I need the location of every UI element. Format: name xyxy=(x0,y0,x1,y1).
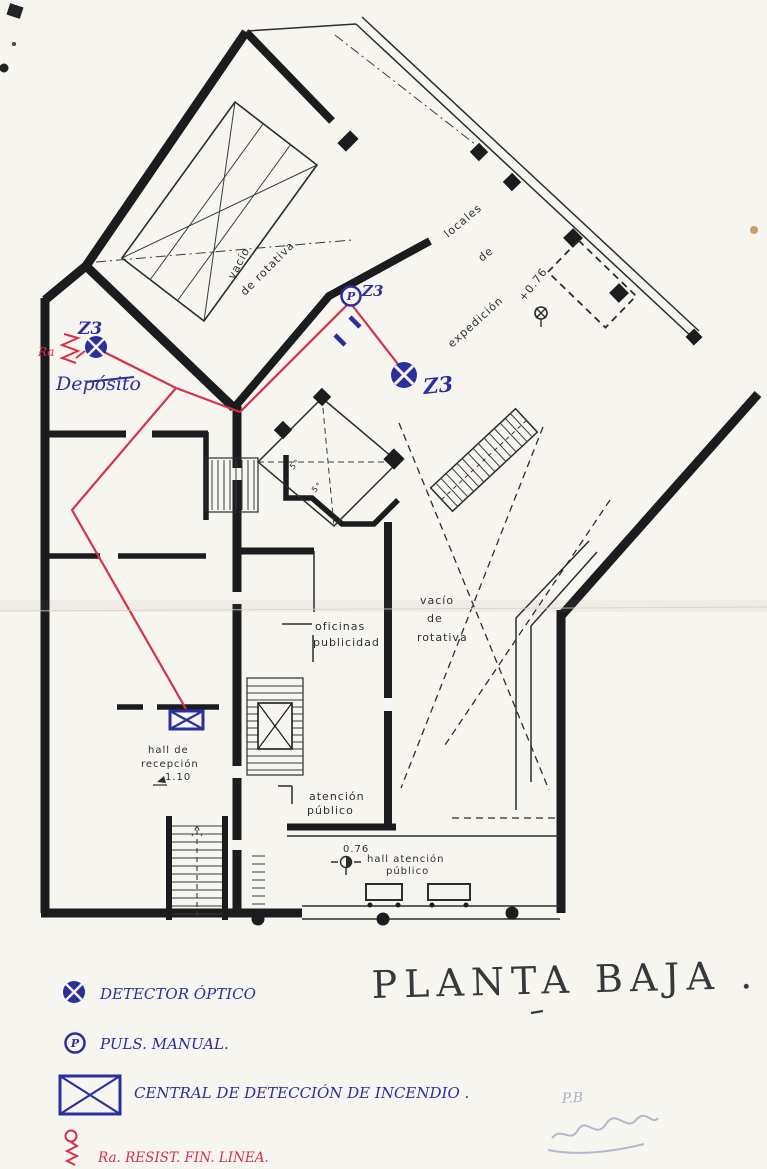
label-hall-de: hall de xyxy=(148,745,189,756)
label-atencion: atención xyxy=(309,790,365,803)
legend-item-label: Ra. RESIST. FIN. LINEA. xyxy=(97,1150,269,1166)
zone-label-z3-2: Z3 xyxy=(361,282,383,300)
fire-panel-icon xyxy=(170,711,203,729)
zone-label-z3-3: Z3 xyxy=(421,371,454,399)
pushbutton-letter: P xyxy=(346,290,356,303)
label-level-110: 1.10 xyxy=(165,772,191,783)
deposito-note: Depósito xyxy=(55,373,141,395)
label-level-076-hall: 0.76 xyxy=(343,844,369,855)
label-publico: público xyxy=(307,804,354,817)
legend-item-label: CENTRAL DE DETECCIÓN DE INCENDIO . xyxy=(134,1084,469,1102)
label-oficinas: oficinas xyxy=(315,620,365,633)
label-hall-publico: público xyxy=(386,865,429,877)
ink-speck xyxy=(12,42,16,46)
floorplan-scan: vacío de rotativa locales de expedición … xyxy=(0,0,767,1169)
label-vacio-mid-2: de xyxy=(427,612,443,625)
legend-item-label: DETECTOR ÓPTICO xyxy=(99,985,256,1003)
label-hall-atencion: hall atención xyxy=(367,853,444,865)
legend-item-label: PULS. MANUAL. xyxy=(99,1035,229,1053)
paper-stain xyxy=(750,226,758,234)
label-vacio-mid-3: rotativa xyxy=(417,631,468,644)
optical-detector-icon xyxy=(85,336,107,358)
zone-label-z3-1: Z3 xyxy=(77,319,102,339)
pushbutton-letter: P xyxy=(70,1037,80,1050)
scanned-floorplan-page: vacío de rotativa locales de expedición … xyxy=(0,0,767,1169)
eol-resistor-label: Ra xyxy=(37,345,54,359)
label-recepcion: recepción xyxy=(141,758,199,770)
legend-optical-detector-icon xyxy=(63,981,85,1003)
paper-crease xyxy=(0,600,767,612)
manual-pushbutton-icon: P xyxy=(342,287,361,306)
pencil-note: P.B xyxy=(560,1090,583,1107)
optical-detector-icon xyxy=(391,362,417,388)
label-publicidad: publicidad xyxy=(313,636,380,649)
